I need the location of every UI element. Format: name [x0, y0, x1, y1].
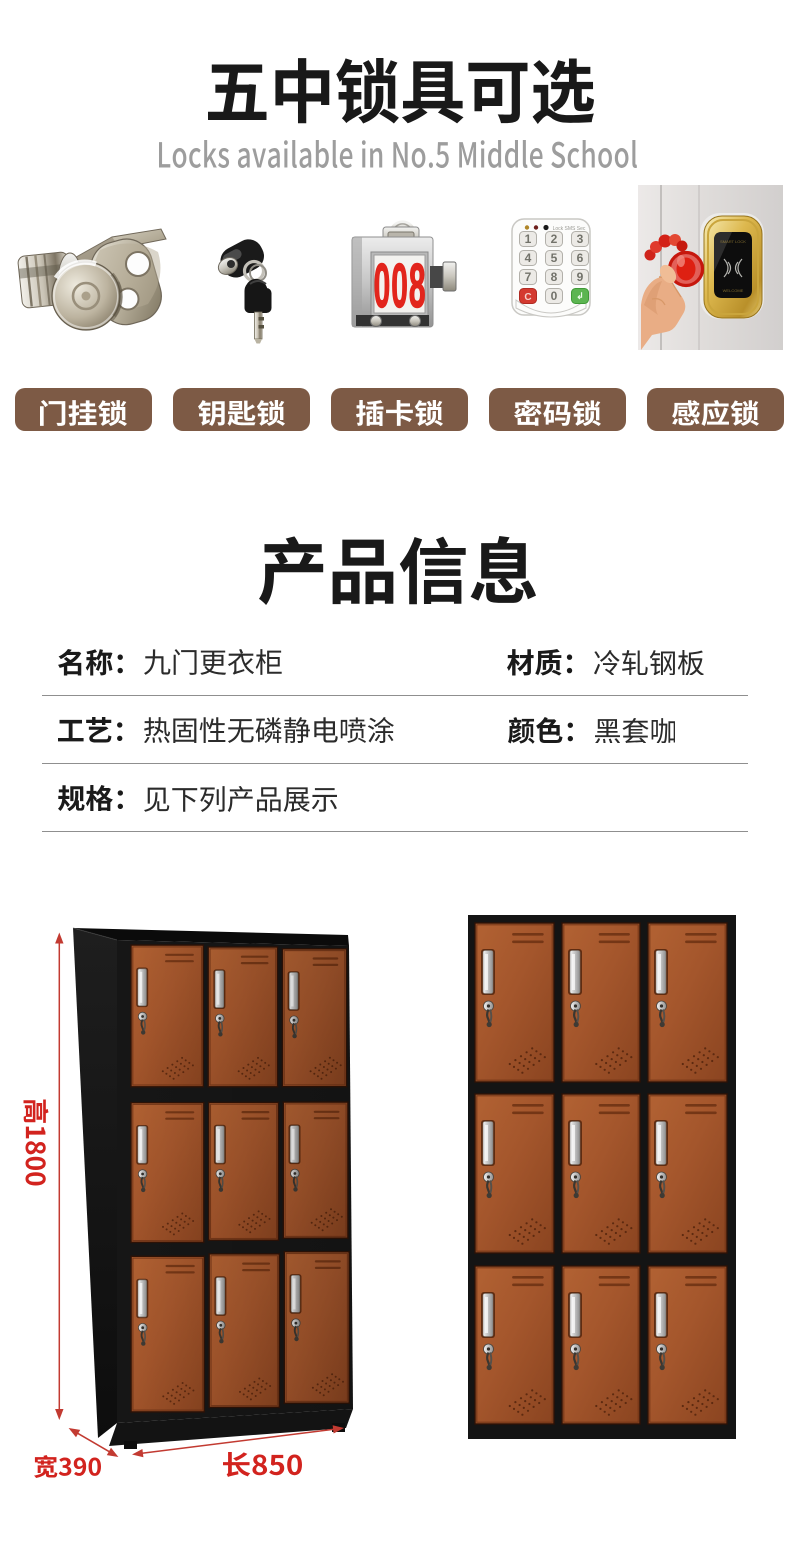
svg-text:WELCOME: WELCOME — [723, 288, 744, 293]
svg-text:8: 8 — [551, 270, 558, 284]
svg-text:1: 1 — [525, 232, 532, 246]
svg-text:↲: ↲ — [576, 291, 584, 301]
svg-text:2: 2 — [551, 232, 558, 246]
svg-text:7: 7 — [525, 270, 532, 284]
svg-text:3: 3 — [577, 232, 584, 246]
svg-text:9: 9 — [577, 270, 584, 284]
svg-text:4: 4 — [525, 251, 532, 265]
svg-text:C: C — [524, 292, 531, 303]
svg-text:008: 008 — [374, 252, 427, 321]
svg-text:0: 0 — [551, 289, 558, 303]
svg-text:6: 6 — [577, 251, 584, 265]
svg-text:SMART LOCK: SMART LOCK — [720, 239, 746, 244]
svg-text:5: 5 — [551, 251, 558, 265]
